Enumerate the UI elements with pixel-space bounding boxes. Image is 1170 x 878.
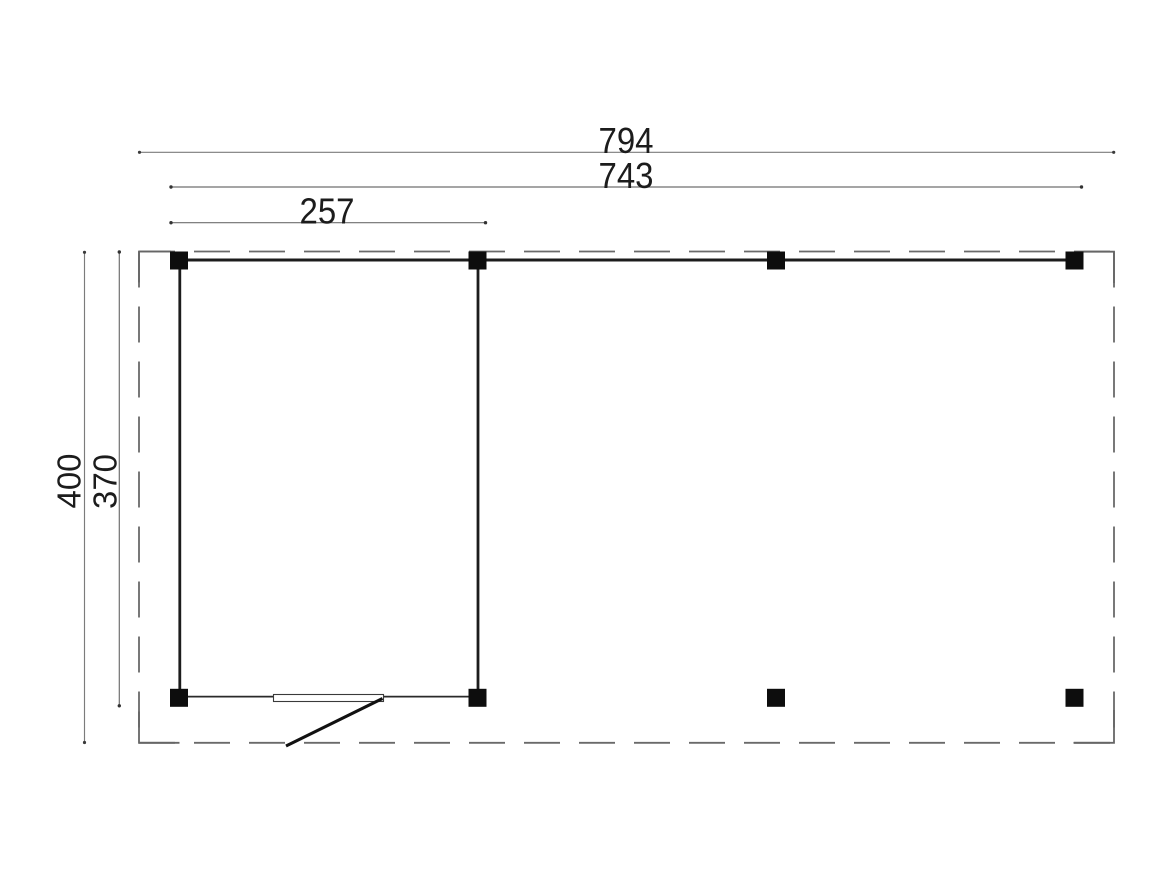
svg-text:794: 794 bbox=[598, 122, 653, 162]
svg-text:370: 370 bbox=[87, 454, 124, 509]
svg-text:257: 257 bbox=[299, 192, 354, 232]
svg-text:743: 743 bbox=[598, 157, 653, 197]
svg-text:400: 400 bbox=[51, 453, 88, 508]
